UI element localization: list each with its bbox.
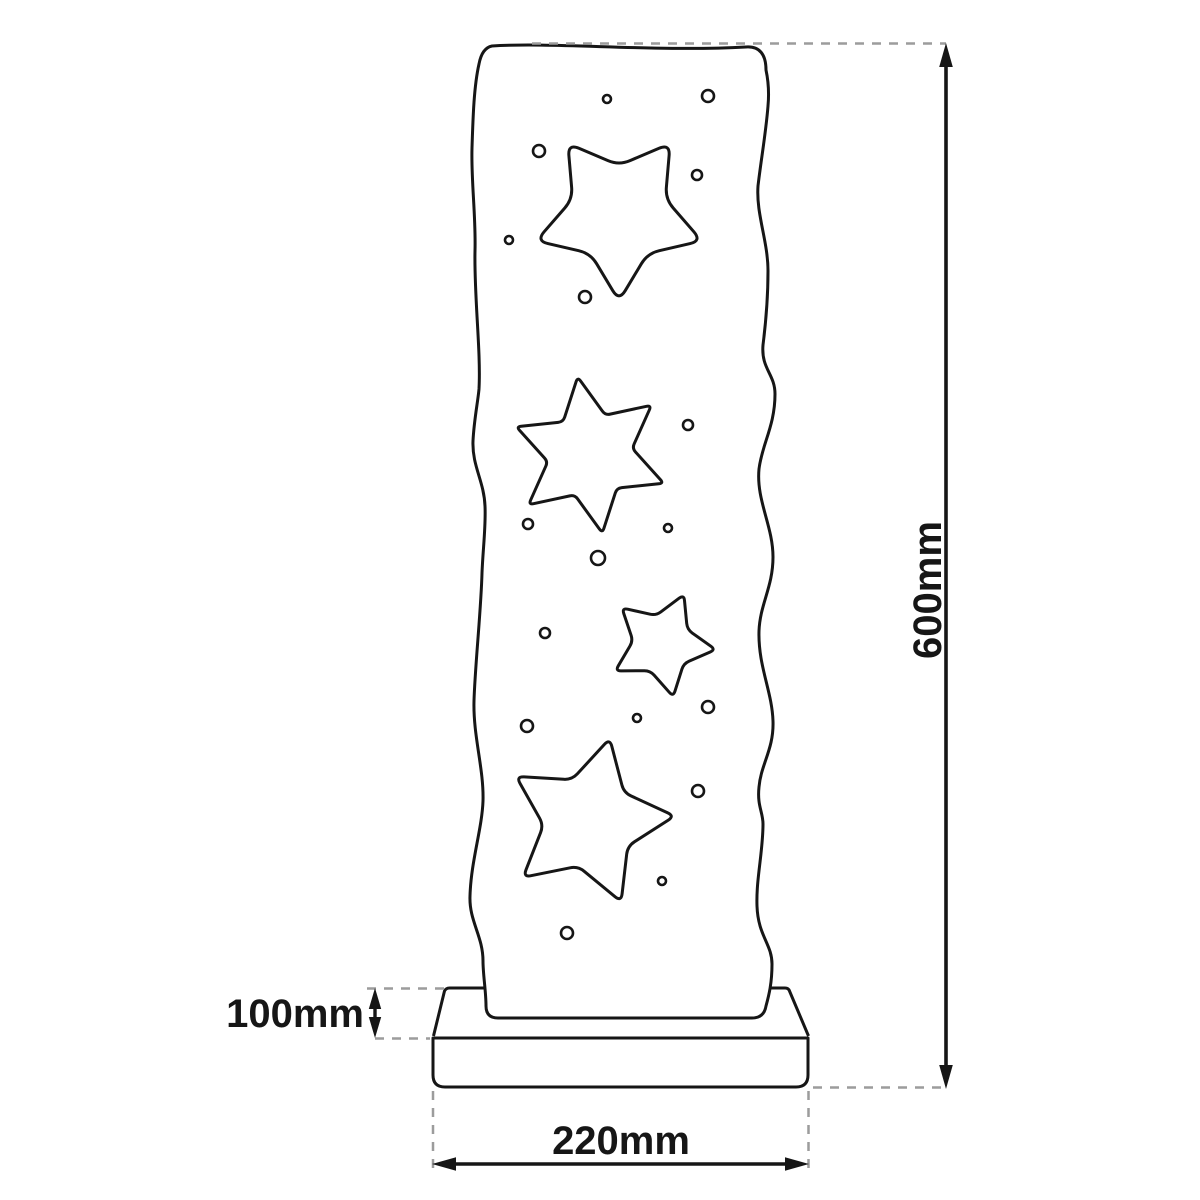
hole-cutout [603,95,611,103]
dim-width-arrow-right [785,1157,809,1171]
dimension-height: 600mm [906,43,953,1089]
hole-cutout [633,714,641,722]
hole-cutout [591,551,605,565]
diagram-canvas: 600mm 100mm 220mm [0,0,1200,1200]
base-bottom-block [433,1038,808,1087]
dim-height-arrow-down [939,1065,953,1089]
dim-width-arrow-left [432,1157,456,1171]
hole-cutout [702,90,714,102]
hole-cutout [683,420,693,430]
dim-base-arrow-up [369,988,381,1009]
hole-cutout [561,927,573,939]
hole-cutout [664,524,672,532]
hole-cutout [521,720,533,732]
hole-cutout [692,170,702,180]
hole-cutout [505,236,513,244]
hole-cutout [540,628,550,638]
hole-cutout [533,145,545,157]
dimension-base-height: 100mm [226,988,381,1038]
hole-cutout [658,877,666,885]
dimension-diagram: 600mm 100mm 220mm [0,0,1200,1200]
dim-base-arrow-down [369,1017,381,1038]
hole-cutout [523,519,533,529]
dimension-width: 220mm [432,1119,809,1171]
hole-cutout [702,701,714,713]
hole-cutout [579,291,591,303]
dim-base-label: 100mm [226,992,364,1036]
dim-height-arrow-up [939,43,953,67]
dim-width-label: 220mm [552,1119,690,1163]
dim-height-label: 600mm [906,521,950,659]
hole-cutout [692,785,704,797]
